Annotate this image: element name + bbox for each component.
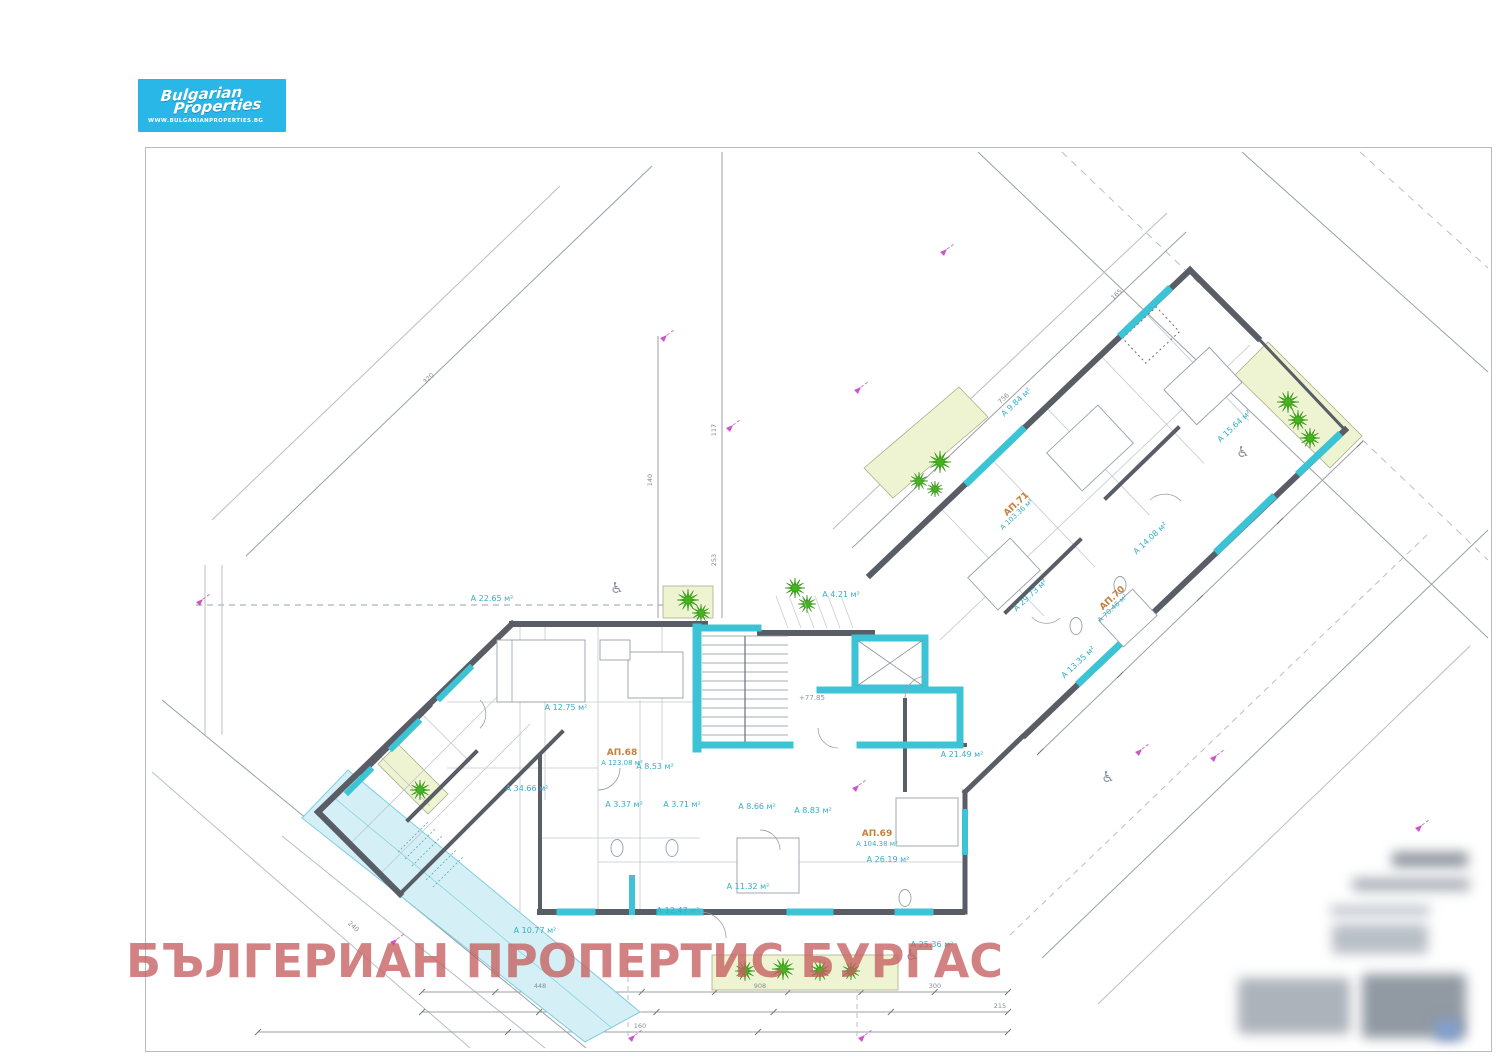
- plan-text: А 104.38 м²: [856, 840, 898, 848]
- plan-text: А 26.19 м²: [867, 855, 910, 864]
- plan-text: А 22.65 м²: [471, 594, 514, 603]
- plan-text: А 4.21 м²: [822, 590, 860, 599]
- plan-text: 117: [710, 424, 718, 436]
- plan-text: 253: [710, 554, 718, 566]
- plan-text: А 3.37 м²: [605, 800, 643, 809]
- plan-text: АП.68: [607, 748, 637, 758]
- plan-text: ♿: [610, 579, 623, 597]
- plan-text: 240: [346, 919, 361, 933]
- plan-text: 215: [994, 1002, 1006, 1010]
- plan-text: 140: [646, 474, 654, 486]
- plan-text: А 123.08 м²: [601, 759, 643, 767]
- plan-text: А 11.32 м²: [727, 882, 770, 891]
- plan-text: А 34.66 м²: [506, 784, 549, 793]
- pool-areas: [302, 770, 640, 1042]
- plan-text: А 15.64 м²: [1216, 408, 1253, 444]
- survey-markers: [196, 244, 1429, 1042]
- page: Bulgarian Properties WWW.BULGARIANPROPER…: [0, 0, 1500, 1061]
- plan-text: А 8.83 м²: [794, 806, 832, 815]
- plan-text: 160: [634, 1022, 646, 1030]
- floor-plan-drawing: А 22.65 м²А 12.75 м²А 34.66 м²А 10.77 м²…: [0, 0, 1500, 1061]
- plan-text: А 12.47 м²: [657, 906, 700, 915]
- plan-text: А 12.75 м²: [545, 703, 588, 712]
- plan-text: +77.85: [799, 694, 825, 702]
- plan-text: А 8.66 м²: [738, 802, 776, 811]
- plan-text: ♿: [1101, 768, 1114, 786]
- plan-text: ♿: [1236, 443, 1249, 461]
- plan-text: А 14.08 м²: [1132, 520, 1169, 556]
- plan-text: А 21.49 м²: [941, 750, 984, 759]
- plan-text: А 3.71 м²: [663, 800, 701, 809]
- plan-text: АП.69: [862, 829, 892, 839]
- plan-text: 320: [421, 371, 435, 385]
- watermark-text: БЪЛГЕРИАН ПРОПЕРТИС БУРГАС: [126, 934, 1086, 988]
